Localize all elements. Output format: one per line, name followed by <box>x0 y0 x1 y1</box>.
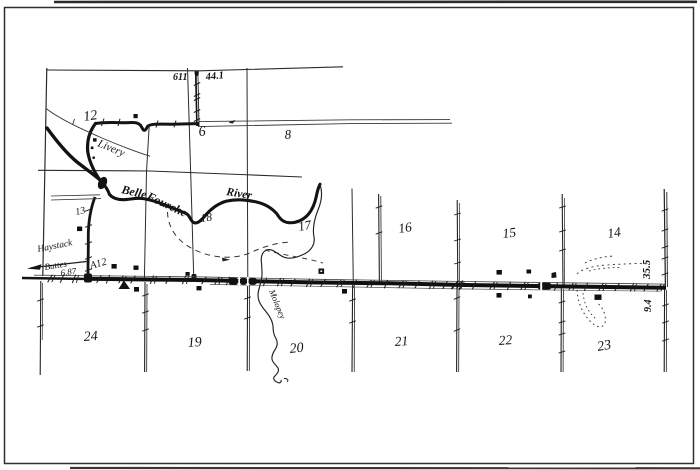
svg-text:8: 8 <box>284 126 292 142</box>
svg-text:15: 15 <box>502 225 517 241</box>
svg-text:22: 22 <box>498 332 513 348</box>
svg-text:24: 24 <box>83 329 98 345</box>
svg-text:21: 21 <box>394 333 409 349</box>
svg-text:18: 18 <box>200 211 213 225</box>
svg-text:9.4: 9.4 <box>643 300 654 313</box>
svg-text:14: 14 <box>606 224 622 241</box>
svg-text:19: 19 <box>187 335 202 351</box>
svg-text:Molopey: Molopey <box>267 287 288 320</box>
svg-text:12: 12 <box>82 108 98 125</box>
svg-text:23: 23 <box>596 338 612 355</box>
svg-text:6: 6 <box>198 124 206 140</box>
svg-text:Fourche: Fourche <box>144 189 190 220</box>
svg-text:611: 611 <box>173 72 187 83</box>
svg-text:13: 13 <box>74 205 86 218</box>
svg-text:44.1: 44.1 <box>204 70 224 83</box>
svg-text:20: 20 <box>289 341 304 357</box>
svg-text:16: 16 <box>397 219 413 236</box>
svg-text:Haystack: Haystack <box>36 238 74 255</box>
svg-text:A12: A12 <box>88 256 109 272</box>
svg-text:17: 17 <box>297 217 313 234</box>
svg-text:35.5: 35.5 <box>641 259 653 280</box>
svg-text:Livery: Livery <box>95 137 127 159</box>
